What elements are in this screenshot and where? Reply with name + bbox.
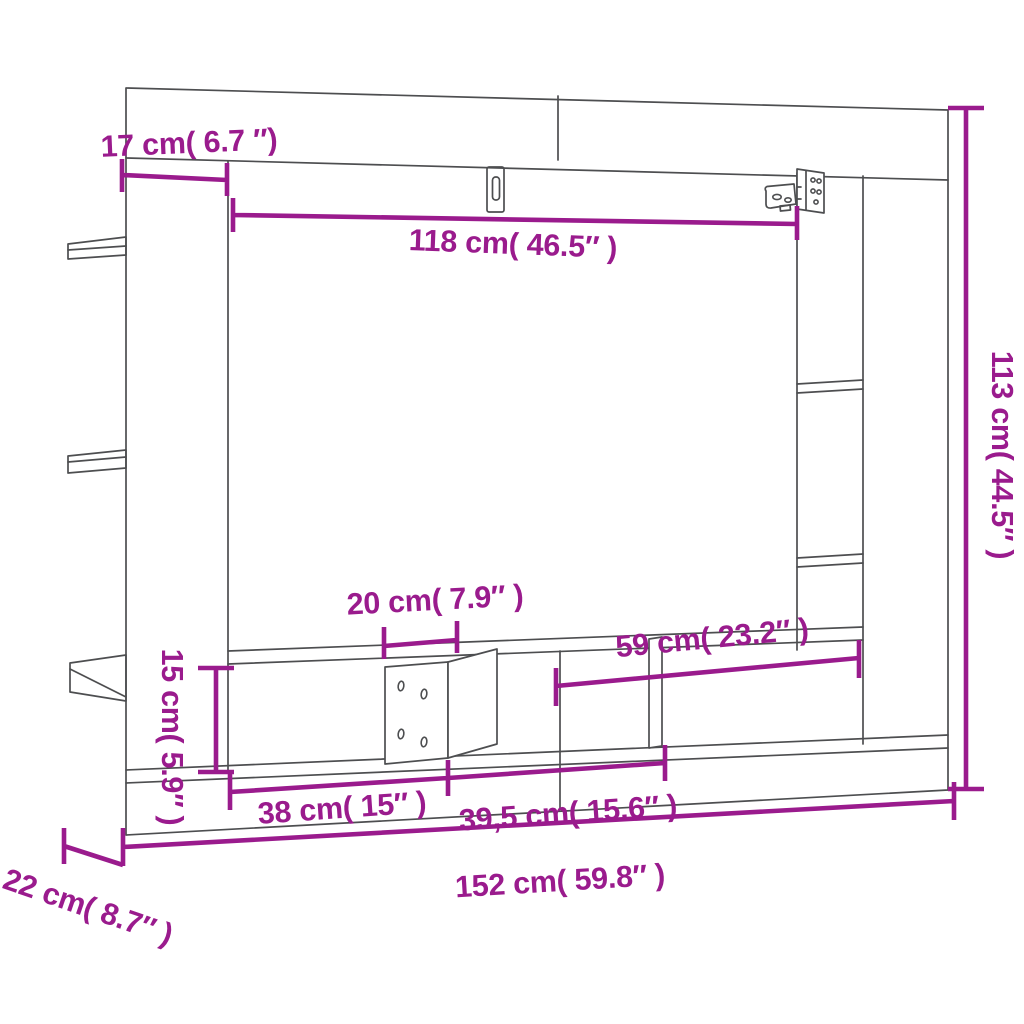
right-strip-shelf-lower (797, 554, 863, 567)
dimension-line (122, 159, 227, 196)
dimension-label: 152 cm( 59.8″ ) (454, 858, 666, 905)
left-shelf-tab-top (68, 237, 126, 259)
divider-hole (398, 681, 405, 691)
dimension-label: 39,5 cm( 15.6″ ) (458, 788, 678, 837)
diagram-svg: 17 cm( 6.7 ″) 118 cm( 46.5″ ) 113 cm( 44… (0, 0, 1024, 1024)
dimension-label: 59 cm( 23.2″ ) (614, 612, 810, 664)
dimension-label: 15 cm( 5.9″ ) (155, 649, 189, 826)
holes-divider-side-face (448, 649, 497, 758)
dimension-line (123, 782, 954, 866)
dimension-label: 20 cm( 7.9″ ) (346, 578, 524, 621)
dimension-compartment-height: 15 cm( 5.9″ ) (155, 649, 234, 826)
furniture-dimension-diagram: 17 cm( 6.7 ″) 118 cm( 46.5″ ) 113 cm( 44… (0, 0, 1024, 1024)
dimension-inner-opening-width: 118 cm( 46.5″ ) (233, 198, 797, 265)
dimension-line (448, 745, 665, 781)
divider-hole (421, 689, 428, 699)
dimension-line (64, 828, 123, 865)
right-strip-shelf-upper (797, 380, 863, 393)
dimension-right-compartment-width: 59 cm( 23.2″ ) (556, 612, 859, 706)
dimension-label: 17 cm( 6.7 ″) (100, 122, 278, 164)
dimension-divider-width: 20 cm( 7.9″ ) (346, 578, 524, 659)
dimension-overall-height: 113 cm( 44.5″ ) (948, 108, 1019, 789)
keyhole-bracket-icon (487, 167, 504, 212)
divider-hole (421, 737, 428, 747)
dimension-label: 38 cm( 15″ ) (257, 785, 428, 831)
dimension-line (384, 621, 457, 659)
divider-hole (398, 729, 405, 739)
left-shelf-tab-middle (68, 450, 126, 473)
dimension-label: 113 cm( 44.5″ ) (985, 351, 1019, 560)
holes-divider-front-face (385, 662, 448, 764)
dimension-line (948, 108, 984, 789)
dimension-label: 118 cm( 46.5″ ) (408, 223, 618, 265)
dimension-label: 22 cm( 8.7″ ) (0, 862, 177, 952)
cabinet-line-drawing (68, 88, 948, 835)
dimension-annotations: 17 cm( 6.7 ″) 118 cm( 46.5″ ) 113 cm( 44… (0, 108, 1019, 952)
left-shelf-tab-bottom (70, 655, 126, 701)
